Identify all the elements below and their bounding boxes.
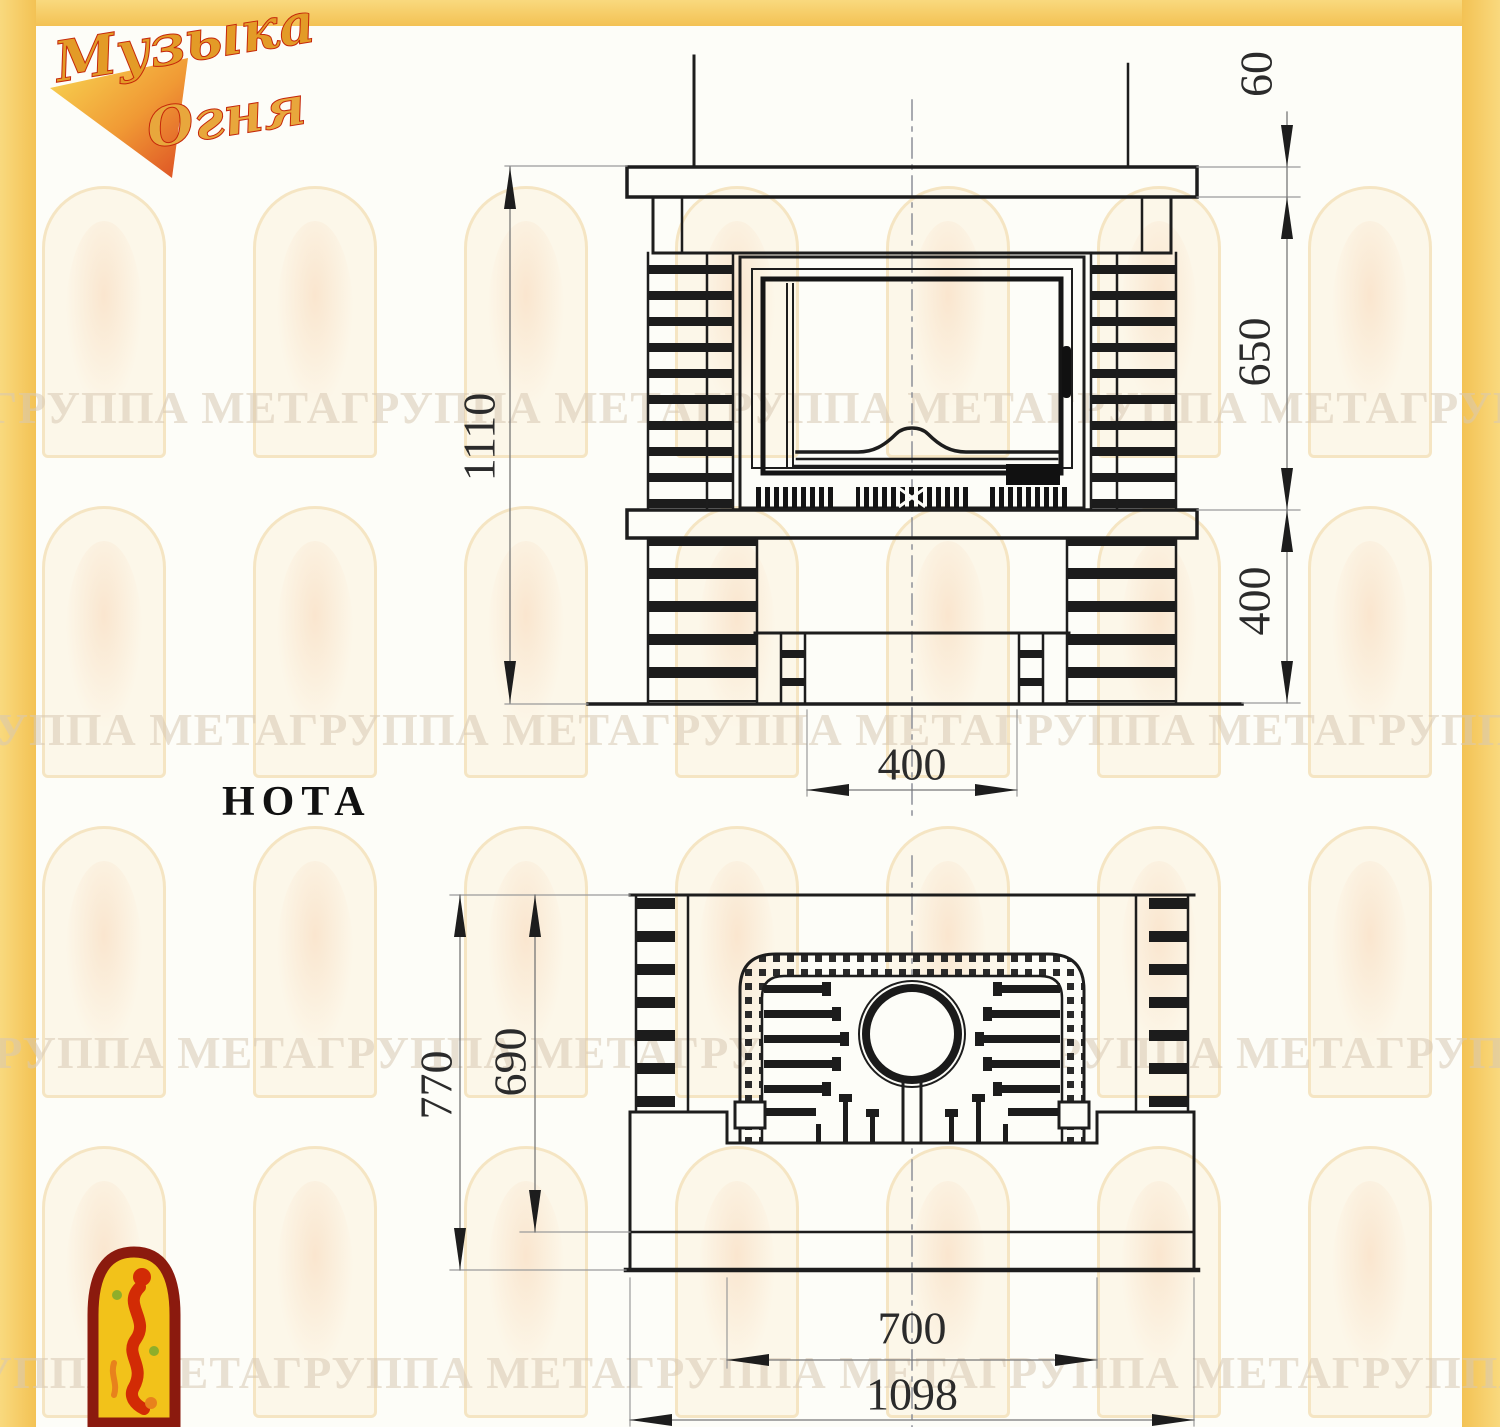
front-view: 1110 60 650 400 400 — [454, 51, 1301, 818]
dim-label-opening-width: 700 — [878, 1303, 947, 1354]
ash-lip — [1006, 464, 1060, 485]
plan-view: 770 690 700 1098 — [411, 856, 1199, 1427]
dim-label-total-width: 1098 — [866, 1369, 958, 1420]
log-retainer-wave — [797, 428, 1057, 452]
footer-logo — [84, 1243, 184, 1427]
product-label: НОТА — [222, 778, 372, 826]
dim-label-total-depth: 770 — [411, 1051, 462, 1120]
liner-corner-fitting-right — [1059, 1102, 1089, 1128]
dim-label-inner-depth: 690 — [485, 1028, 536, 1097]
door-handle — [1062, 346, 1071, 398]
dim-label-firebox-height: 650 — [1229, 318, 1280, 387]
dim-label-mantel-thickness: 60 — [1231, 51, 1282, 97]
flue-opening — [866, 988, 958, 1080]
footer-logo-accent — [113, 1363, 115, 1395]
dim-label-pedestal-width: 400 — [878, 739, 947, 790]
brand-logo: Музыка Огня — [22, 10, 322, 190]
vent-grille — [752, 487, 1070, 508]
liner-corner-fitting-left — [735, 1102, 765, 1128]
door-hinge-lines — [787, 284, 793, 468]
dim-label-total-height: 1110 — [454, 393, 505, 482]
plan-firebox-liner — [735, 954, 1089, 1143]
dim-label-base-height: 400 — [1229, 567, 1280, 636]
technical-drawing: 1110 60 650 400 400 — [0, 0, 1500, 1427]
